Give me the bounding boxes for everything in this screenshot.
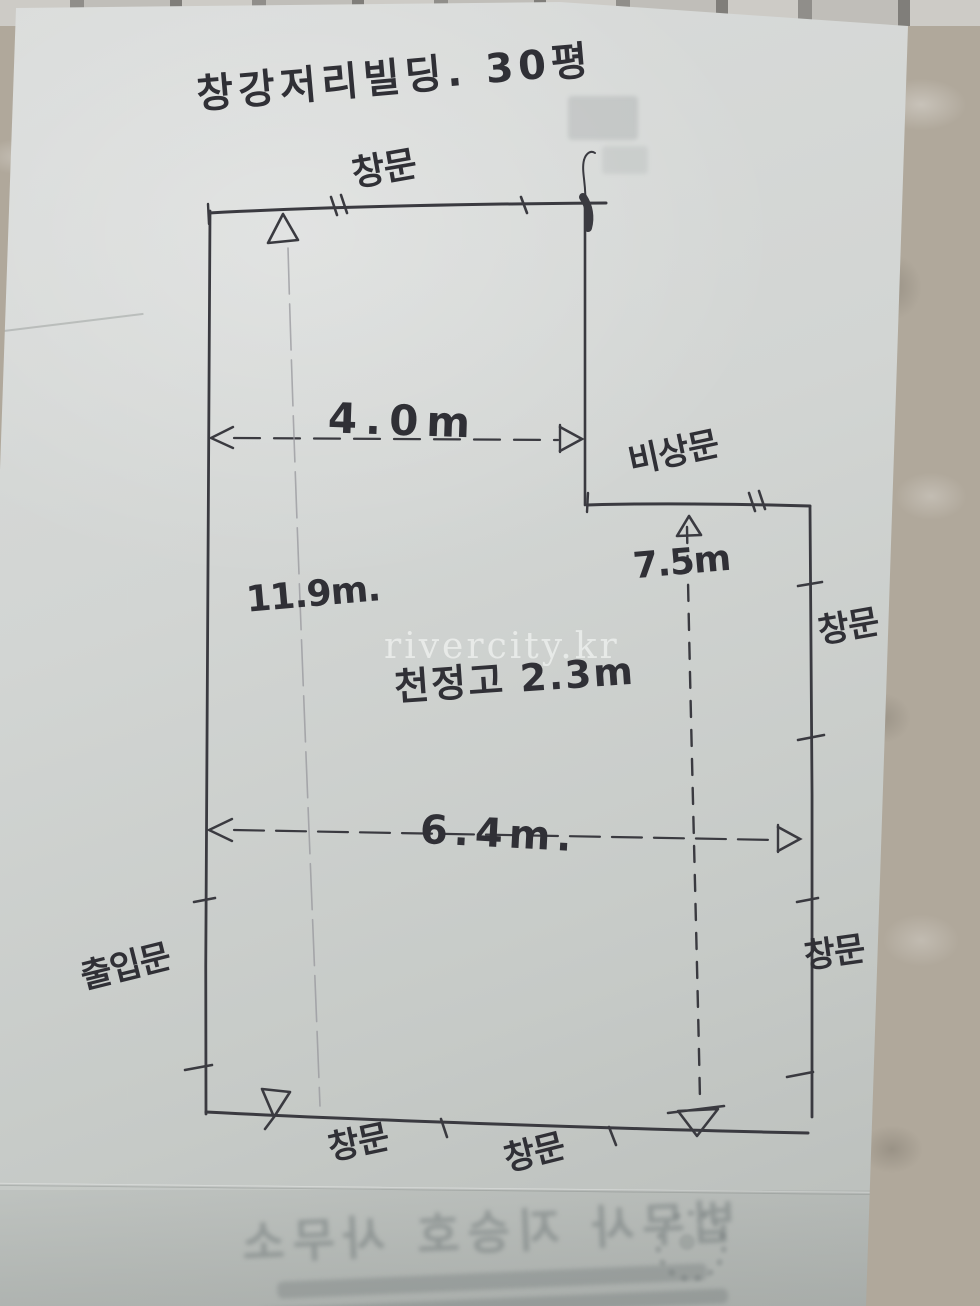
window-tick: [787, 1072, 813, 1077]
window-tick: [185, 1065, 212, 1070]
arrow-annex: [677, 516, 701, 536]
window-tick: [797, 898, 818, 902]
window-tick: [194, 898, 215, 902]
arrow-top-left: [268, 214, 298, 243]
window-tick: [609, 1127, 616, 1145]
dimension-middle-width: 6.4m.: [419, 810, 579, 858]
photo-of-floorplan: 창강저리빌딩. 30평 창문 4.0m 비상문 7.5m 11.9m. 천정고 …: [0, 0, 980, 1306]
arrow-bottom-left: [262, 1089, 290, 1129]
dimension-top-width: 4.0m: [327, 397, 479, 444]
paper-shading: [0, 1190, 980, 1306]
label-window-right-lower: 창문: [802, 932, 867, 974]
label-window-right-upper: 창문: [816, 605, 882, 649]
dimension-annex-width: 7.5m: [632, 541, 732, 585]
paper-sheet: 창강저리빌딩. 30평 창문 4.0m 비상문 7.5m 11.9m. 천정고 …: [0, 0, 980, 1306]
window-tick: [749, 491, 765, 511]
watermark: rivercity.kr: [384, 626, 620, 667]
pencil-guide-line: [288, 248, 320, 1106]
window-tick: [331, 195, 347, 215]
